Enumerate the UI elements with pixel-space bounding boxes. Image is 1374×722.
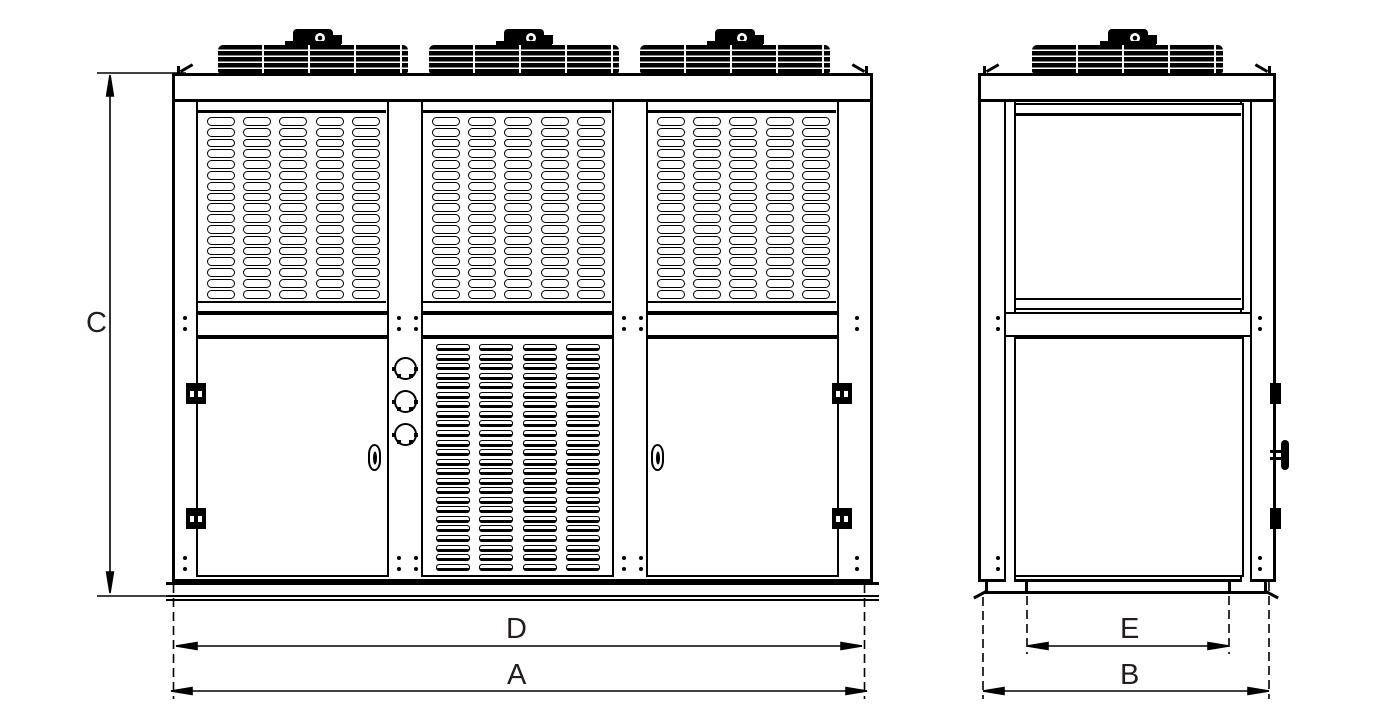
louver-slat xyxy=(523,411,557,418)
louver-slat xyxy=(479,516,513,523)
front-corner-chamfer xyxy=(180,63,193,72)
louver-slat xyxy=(436,401,470,408)
grille-slot xyxy=(766,203,794,212)
grille-slot xyxy=(802,268,830,277)
fan-unit xyxy=(218,29,408,73)
grille-slot xyxy=(504,139,532,148)
grille-slot xyxy=(432,225,460,234)
grille-slot xyxy=(316,193,344,202)
cable-gland-knob xyxy=(394,423,417,446)
door-handle-side[interactable] xyxy=(1270,440,1292,470)
louver-slat xyxy=(436,525,470,532)
grille-slot xyxy=(504,268,532,277)
louver-slat xyxy=(436,516,470,523)
grille-slot xyxy=(352,171,380,180)
door-handle-core xyxy=(373,451,377,464)
grille-slot xyxy=(577,160,605,169)
grille-slot xyxy=(352,160,380,169)
hinge-slot xyxy=(190,391,194,397)
side-corner-chamfer xyxy=(1255,63,1268,72)
louver-slat xyxy=(566,478,600,485)
louver-slat xyxy=(566,506,600,513)
screw-dot xyxy=(414,556,418,560)
grille-slot xyxy=(541,214,569,223)
grille-slot xyxy=(693,193,721,202)
grille-slot xyxy=(279,236,307,245)
grille-slot xyxy=(243,236,271,245)
grille-slot xyxy=(729,225,757,234)
side-base-bottom xyxy=(985,591,1267,594)
grille-slot xyxy=(504,193,532,202)
screw-dot xyxy=(622,556,626,560)
louver-slat xyxy=(566,516,600,523)
louver-slat xyxy=(479,545,513,552)
side-mid-rail-panel xyxy=(1004,312,1252,337)
grille-slot xyxy=(766,149,794,158)
grille-slot xyxy=(504,290,532,299)
grille-slot xyxy=(279,279,307,288)
louver-slat xyxy=(566,497,600,504)
grille-slot xyxy=(352,268,380,277)
grille-slot xyxy=(802,203,830,212)
door-hinge-side xyxy=(1270,508,1281,529)
grille-slot xyxy=(657,193,685,202)
grille-slot xyxy=(352,257,380,266)
screw-dot xyxy=(855,556,859,560)
grille-slot xyxy=(243,128,271,137)
grille-slot xyxy=(693,236,721,245)
grille-slot xyxy=(693,149,721,158)
grille-slot xyxy=(207,247,235,256)
louver-slat xyxy=(523,449,557,456)
louver-slat xyxy=(523,545,557,552)
side-corner-chamfer xyxy=(986,63,999,72)
grille-slot xyxy=(802,236,830,245)
screw-dot xyxy=(996,556,1000,560)
grille-slot xyxy=(432,257,460,266)
louver-slat xyxy=(523,363,557,370)
grille-slot xyxy=(693,182,721,191)
grille-slot xyxy=(243,279,271,288)
dimension-label-d: D xyxy=(506,613,527,646)
grille-slot xyxy=(729,160,757,169)
grille-slot xyxy=(316,149,344,158)
grille-slot xyxy=(316,279,344,288)
gland-tick xyxy=(414,433,418,437)
grille-slot xyxy=(243,149,271,158)
grille-slot xyxy=(243,257,271,266)
grille-slot xyxy=(468,128,496,137)
louver-slat xyxy=(566,373,600,380)
grille-slot xyxy=(577,128,605,137)
grille-bottom-rail xyxy=(423,301,611,304)
grille-slot xyxy=(316,268,344,277)
grille-slot xyxy=(468,236,496,245)
grille-slot xyxy=(207,182,235,191)
mid-rail-panel xyxy=(196,313,389,337)
gland-tick xyxy=(397,440,401,444)
grille-slot xyxy=(577,236,605,245)
louver-slat xyxy=(436,478,470,485)
grille-slot xyxy=(541,160,569,169)
louver-slat xyxy=(523,344,557,351)
grille-slot xyxy=(577,225,605,234)
grille-slot xyxy=(279,171,307,180)
hinge-slot xyxy=(836,391,840,397)
grille-slot xyxy=(729,268,757,277)
louver-slat xyxy=(523,478,557,485)
louver-slat xyxy=(479,344,513,351)
hinge-slot xyxy=(198,516,202,522)
grille-slot xyxy=(541,139,569,148)
grille-slot xyxy=(468,171,496,180)
grille-slot xyxy=(766,279,794,288)
grille-slot xyxy=(541,171,569,180)
louver-slat xyxy=(479,487,513,494)
screw-dot xyxy=(996,316,1000,320)
cable-gland-knob xyxy=(394,390,417,413)
front-corner-nub xyxy=(865,66,868,75)
grille-slot xyxy=(352,214,380,223)
grille-slot xyxy=(468,203,496,212)
louver-panel xyxy=(421,337,614,577)
grille-slot xyxy=(316,214,344,223)
grille-slot xyxy=(243,117,271,126)
grille-slot xyxy=(352,149,380,158)
louver-slat xyxy=(479,392,513,399)
screw-dot xyxy=(1258,556,1262,560)
grille-slot xyxy=(279,182,307,191)
access-door-right[interactable] xyxy=(646,337,839,577)
grille-slot xyxy=(316,225,344,234)
louver-slat xyxy=(479,440,513,447)
louver-slat xyxy=(566,430,600,437)
grille-slot xyxy=(577,117,605,126)
grille-slot xyxy=(432,279,460,288)
louver-slat xyxy=(566,535,600,542)
grille-slot xyxy=(243,268,271,277)
louver-slat xyxy=(566,525,600,532)
louver-slat xyxy=(566,564,600,571)
louver-slat xyxy=(436,430,470,437)
side-top-rail xyxy=(978,99,1276,102)
louver-slat xyxy=(566,382,600,389)
louver-slat xyxy=(436,487,470,494)
door-hinge-side xyxy=(1270,383,1281,404)
grille-slot xyxy=(316,128,344,137)
grille-slot xyxy=(541,247,569,256)
grille-slot xyxy=(207,236,235,245)
screw-dot xyxy=(622,316,626,320)
screw-dot xyxy=(855,327,859,331)
screw-dot xyxy=(183,316,187,320)
louver-slat xyxy=(566,449,600,456)
grille-slot xyxy=(657,182,685,191)
grille-slot xyxy=(766,182,794,191)
grille-slot xyxy=(279,225,307,234)
grille-slot xyxy=(316,171,344,180)
grille-slot xyxy=(352,247,380,256)
screw-dot xyxy=(183,556,187,560)
grille-slot xyxy=(693,247,721,256)
side-upper-panel xyxy=(1014,103,1244,310)
grille-slot xyxy=(766,236,794,245)
grille-slot xyxy=(766,214,794,223)
louver-slat xyxy=(523,420,557,427)
condenser-grille-bay xyxy=(421,100,614,313)
grille-slot xyxy=(432,247,460,256)
grille-slot xyxy=(766,268,794,277)
grille-slot xyxy=(729,290,757,299)
grille-slot xyxy=(504,257,532,266)
grille-slot xyxy=(316,203,344,212)
louver-slat xyxy=(436,535,470,542)
grille-slot xyxy=(504,214,532,223)
grille-slot xyxy=(766,160,794,169)
grille-slot xyxy=(541,117,569,126)
grille-slot xyxy=(802,257,830,266)
gland-tick xyxy=(392,367,396,371)
louver-slat xyxy=(436,363,470,370)
grille-slot xyxy=(577,203,605,212)
screw-dot xyxy=(639,567,643,571)
grille-slot xyxy=(693,160,721,169)
grille-slot xyxy=(207,268,235,277)
louver-slat xyxy=(436,459,470,466)
fan-guard-icon xyxy=(429,45,619,73)
grille-slot xyxy=(432,128,460,137)
grille-slot xyxy=(541,236,569,245)
grille-slot xyxy=(279,214,307,223)
grille-slot xyxy=(577,171,605,180)
louver-slat xyxy=(479,430,513,437)
screw-dot xyxy=(639,327,643,331)
grille-slot xyxy=(243,160,271,169)
grille-slot xyxy=(577,290,605,299)
louver-slat xyxy=(479,497,513,504)
side-lower-panel xyxy=(1014,337,1244,577)
grille-slot xyxy=(693,214,721,223)
grille-slot xyxy=(657,279,685,288)
gland-tick xyxy=(409,407,413,411)
gland-tick xyxy=(414,400,418,404)
fan-guard-icon xyxy=(640,45,830,73)
grille-slot xyxy=(657,225,685,234)
grille-slot xyxy=(802,290,830,299)
grille-slot xyxy=(541,290,569,299)
louver-slat xyxy=(436,440,470,447)
gland-tick xyxy=(392,400,396,404)
grille-slot xyxy=(468,117,496,126)
mid-rail-panel xyxy=(646,313,839,337)
grille-slot xyxy=(352,193,380,202)
grille-slot xyxy=(352,182,380,191)
grille-slot xyxy=(693,279,721,288)
grille-slot xyxy=(729,214,757,223)
grille-slot xyxy=(279,203,307,212)
gland-tick xyxy=(409,440,413,444)
grille-slot xyxy=(657,160,685,169)
louver-slat xyxy=(523,516,557,523)
louver-slat xyxy=(479,401,513,408)
cable-gland-knob xyxy=(394,357,417,380)
louver-slat xyxy=(436,497,470,504)
grille-slot xyxy=(504,149,532,158)
grille-slot xyxy=(432,193,460,202)
louver-slat xyxy=(523,392,557,399)
grille-slot xyxy=(316,160,344,169)
grille-slot xyxy=(432,268,460,277)
screw-dot xyxy=(397,567,401,571)
grille-slot xyxy=(657,117,685,126)
louver-slat xyxy=(436,545,470,552)
grille-slot xyxy=(766,247,794,256)
louver-slat xyxy=(436,420,470,427)
screw-dot xyxy=(639,316,643,320)
louver-slat xyxy=(523,401,557,408)
dimension-label-e: E xyxy=(1120,613,1140,646)
louver-slat xyxy=(479,535,513,542)
louver-slat xyxy=(566,363,600,370)
grille-slot xyxy=(657,247,685,256)
grille-slot xyxy=(207,193,235,202)
louver-slat xyxy=(479,373,513,380)
louver-slat xyxy=(436,468,470,475)
grille-slot xyxy=(577,149,605,158)
grille-slot xyxy=(352,225,380,234)
grille-slot xyxy=(316,117,344,126)
grille-slot xyxy=(243,247,271,256)
grille-slot xyxy=(729,247,757,256)
grille-slot xyxy=(729,149,757,158)
grille-slot xyxy=(729,193,757,202)
grille-slot xyxy=(352,279,380,288)
louver-slat xyxy=(479,554,513,561)
grille-slot xyxy=(243,290,271,299)
technical-drawing-canvas: C D A E B xyxy=(0,0,1374,722)
grille-slot xyxy=(243,182,271,191)
grille-slot xyxy=(207,160,235,169)
grille-slot xyxy=(541,279,569,288)
grille-slot xyxy=(207,290,235,299)
grille-slot xyxy=(504,247,532,256)
front-view xyxy=(0,0,900,722)
grille-slot xyxy=(468,225,496,234)
hinge-slot xyxy=(836,516,840,522)
grille-slot xyxy=(316,257,344,266)
grille-slot xyxy=(577,193,605,202)
louver-slat xyxy=(436,506,470,513)
door-handle[interactable] xyxy=(368,444,381,471)
grille-slot xyxy=(766,171,794,180)
grille-slot xyxy=(207,214,235,223)
grille-slot xyxy=(352,139,380,148)
door-hinge xyxy=(186,508,206,529)
louver-slat xyxy=(566,459,600,466)
front-base-rail xyxy=(166,582,879,601)
door-hinge xyxy=(186,383,206,404)
grille-slot xyxy=(541,149,569,158)
grille-slot xyxy=(657,257,685,266)
grille-slot xyxy=(432,182,460,191)
grille-slot xyxy=(802,128,830,137)
door-hinge xyxy=(832,508,852,529)
grille-slot xyxy=(279,257,307,266)
louver-slat xyxy=(479,468,513,475)
grille-slot xyxy=(693,171,721,180)
grille-slot xyxy=(693,128,721,137)
grille-top-rail xyxy=(198,110,386,113)
grille-slot xyxy=(352,128,380,137)
gland-tick xyxy=(414,367,418,371)
grille-slot xyxy=(207,117,235,126)
grille-slot xyxy=(766,117,794,126)
grille-slot xyxy=(432,149,460,158)
louver-slat xyxy=(566,440,600,447)
grille-slot xyxy=(693,225,721,234)
condenser-grille-bay xyxy=(646,100,839,313)
screw-dot xyxy=(1258,316,1262,320)
grille-slot xyxy=(577,139,605,148)
louver-slat xyxy=(479,525,513,532)
screw-dot xyxy=(183,327,187,331)
grille-slot xyxy=(657,268,685,277)
screw-dot xyxy=(639,556,643,560)
louver-slat xyxy=(479,449,513,456)
louver-slat xyxy=(523,554,557,561)
grille-slot xyxy=(577,214,605,223)
gland-tick xyxy=(409,374,413,378)
hinge-slot xyxy=(844,391,848,397)
louver-slat xyxy=(523,459,557,466)
grille-slot xyxy=(504,225,532,234)
louver-slat xyxy=(523,468,557,475)
screw-dot xyxy=(855,567,859,571)
grille-slot xyxy=(279,268,307,277)
grille-slot xyxy=(279,149,307,158)
grille-slot xyxy=(243,203,271,212)
louver-slat xyxy=(436,392,470,399)
louver-slat xyxy=(479,382,513,389)
grille-slot xyxy=(693,257,721,266)
grille-slot xyxy=(243,193,271,202)
grille-slot xyxy=(243,139,271,148)
grille-slot xyxy=(468,290,496,299)
grille-slot xyxy=(504,236,532,245)
panel-bottom-rail xyxy=(1016,298,1241,301)
grille-slot xyxy=(207,257,235,266)
grille-slot xyxy=(541,193,569,202)
grille-slot xyxy=(468,160,496,169)
grille-slot xyxy=(541,225,569,234)
access-door-left[interactable] xyxy=(196,337,389,577)
grille-slot xyxy=(729,257,757,266)
grille-slot xyxy=(541,203,569,212)
grille-slot xyxy=(207,171,235,180)
louver-slat xyxy=(436,411,470,418)
grille-slot xyxy=(802,279,830,288)
louver-slat xyxy=(523,497,557,504)
door-handle[interactable] xyxy=(651,444,664,471)
hinge-slot xyxy=(198,391,202,397)
grille-top-rail xyxy=(423,110,611,113)
grille-slot xyxy=(693,290,721,299)
grille-slot xyxy=(243,214,271,223)
grille-slot xyxy=(504,203,532,212)
grille-slot xyxy=(432,236,460,245)
grille-slot xyxy=(657,128,685,137)
louver-slat xyxy=(566,487,600,494)
